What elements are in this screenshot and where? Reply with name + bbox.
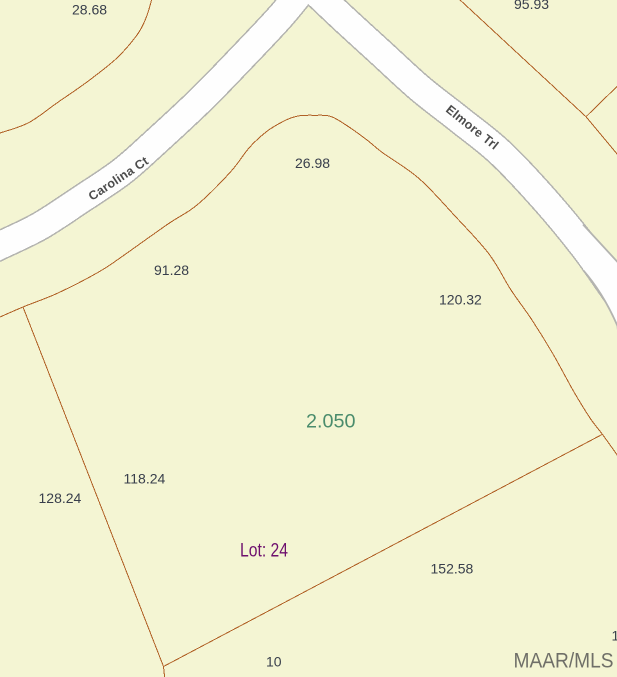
svg-text:118.24: 118.24 <box>124 471 166 487</box>
svg-text:95.93: 95.93 <box>514 0 549 12</box>
svg-text:120.32: 120.32 <box>439 292 482 308</box>
svg-text:26.98: 26.98 <box>295 155 330 171</box>
svg-text:MAAR/MLS: MAAR/MLS <box>514 650 614 673</box>
svg-text:91.28: 91.28 <box>154 262 189 278</box>
svg-text:128.24: 128.24 <box>39 490 82 506</box>
svg-text:1: 1 <box>612 628 617 644</box>
svg-text:28.68: 28.68 <box>72 2 107 18</box>
svg-text:10: 10 <box>266 654 282 670</box>
svg-text:2.050: 2.050 <box>306 412 356 433</box>
svg-text:Lot: 24: Lot: 24 <box>240 541 288 562</box>
svg-text:152.58: 152.58 <box>431 561 474 577</box>
